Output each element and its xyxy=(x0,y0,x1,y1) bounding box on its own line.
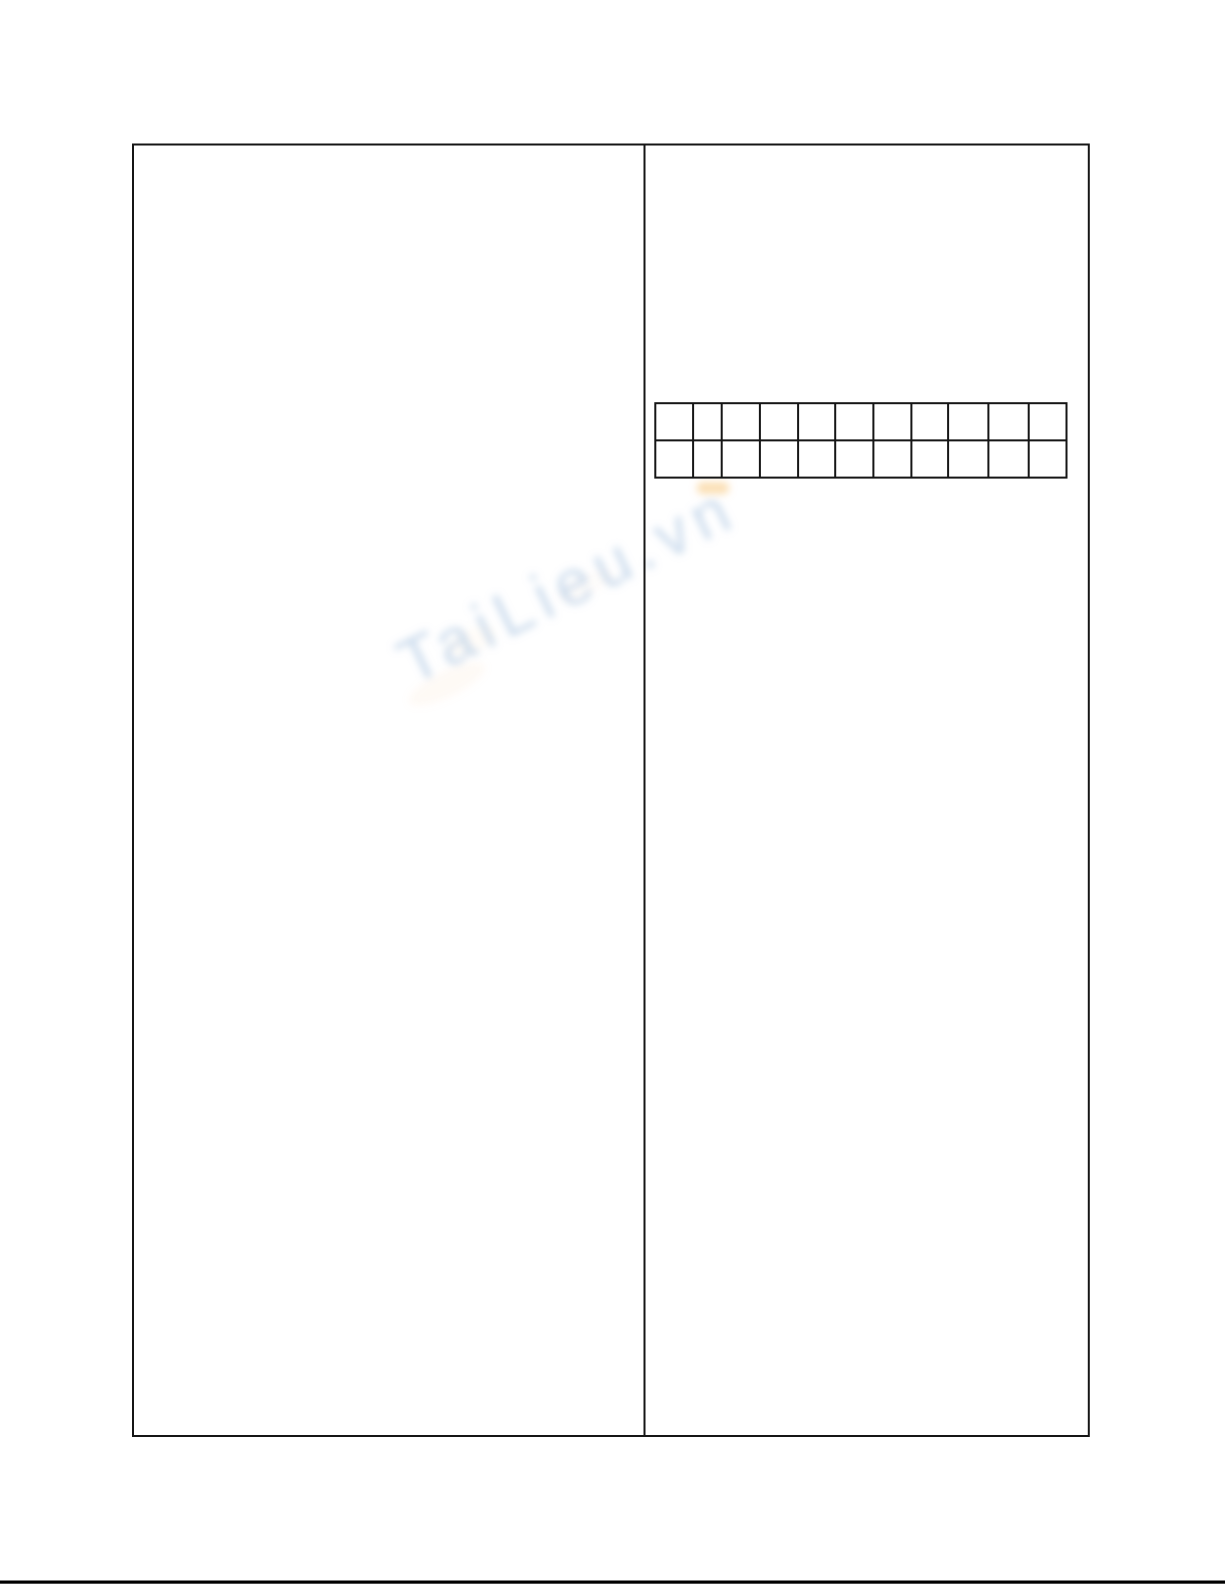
svg-text:TaiLieu.vn: TaiLieu.vn xyxy=(386,471,748,699)
